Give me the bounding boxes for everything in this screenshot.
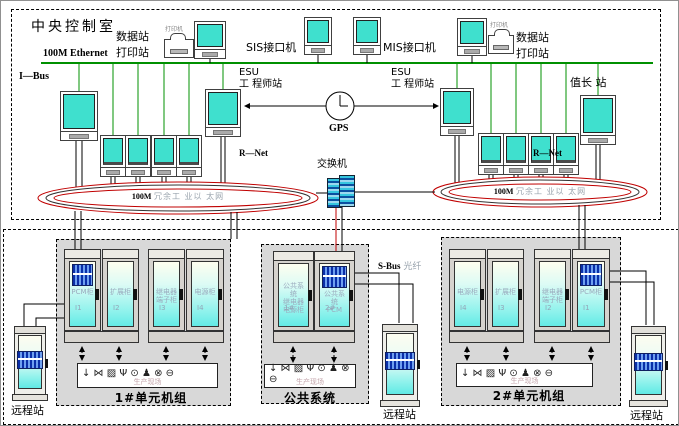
cabinet-base <box>629 400 668 407</box>
cabinet-handle <box>349 290 353 301</box>
remote-station-left <box>14 326 46 398</box>
io-module-rack <box>17 351 43 369</box>
unit1-pcm-cabinet: PCM柜 I1 <box>64 249 101 331</box>
io-module-rack <box>580 264 602 286</box>
esu-label-right: ESU 工 程师站 <box>391 67 434 91</box>
io-module-rack <box>322 266 347 288</box>
field-tag: 生产现场 <box>78 377 217 387</box>
screen <box>443 91 471 124</box>
screen <box>356 20 378 43</box>
cabinet-label: 继电器 端子柜 <box>541 288 564 304</box>
screen <box>128 138 148 165</box>
cabinet-handle <box>179 289 183 300</box>
sbus-media: 光纤 <box>403 262 421 272</box>
cabinet-header <box>274 252 313 261</box>
cabinet-base <box>534 331 610 343</box>
keyboard <box>441 126 473 135</box>
cabinet-handle <box>604 289 608 300</box>
rnet-label-right: R—Net <box>533 148 562 158</box>
ring-name: 冗余工 业以 太网 <box>154 192 224 201</box>
unit2-pcm-cabinet: PCM柜 I1 <box>572 249 610 331</box>
data-print-station-label-right: 数据站 打印站 <box>516 29 549 61</box>
control-room-title: 中央控制室 <box>31 16 116 36</box>
ring-label-left: 100M 冗余工 业以 太网 <box>98 191 258 202</box>
cabinet-door: 继电器 端子柜 I2 <box>539 261 566 327</box>
cabinet-handle <box>45 359 48 368</box>
keyboard <box>206 127 240 136</box>
cabinet-base <box>449 331 524 343</box>
field-tag: 生产现场 <box>265 377 355 387</box>
keyboard <box>61 131 97 140</box>
operator-station-monitor <box>151 135 177 177</box>
rnet-label-left: R—Net <box>239 148 268 158</box>
data-station-monitor-right <box>457 18 487 56</box>
cabinet-header <box>450 250 485 259</box>
switch-unit <box>339 175 355 207</box>
shift-leader-label: 值长 站 <box>570 74 607 90</box>
screen <box>506 136 526 163</box>
ibus-label: I—Bus <box>19 71 49 82</box>
unit1-power-cabinet: 电源柜 I4 <box>186 249 224 331</box>
remote-station-label-right: 远程站 <box>630 407 663 423</box>
ring-label-right: 100M 冗余工 业以 太网 <box>460 186 620 197</box>
io-module-rack <box>72 264 93 286</box>
keyboard <box>581 135 615 144</box>
operator-station-monitor <box>503 133 529 175</box>
cabinet-handle <box>565 289 569 300</box>
cabinet-header <box>488 250 523 259</box>
cabinet-handle <box>133 289 137 300</box>
sbus-name: S-Bus <box>378 261 401 271</box>
operator-station-monitor <box>125 135 151 177</box>
shift-leader-station-monitor <box>580 95 616 145</box>
cabinet-handle <box>518 289 522 300</box>
cabinet-number: I4 <box>197 304 204 312</box>
cabinet-header <box>65 250 100 259</box>
unit1-relay-cabinet: 继电器 端子柜 I3 <box>148 249 185 331</box>
cabinet-handle <box>308 290 312 301</box>
switch-label: 交换机 <box>317 159 347 171</box>
cabinet-base <box>64 331 139 343</box>
cabinet-number: I1 <box>75 304 82 312</box>
cabinet-number: I3 <box>498 304 505 312</box>
cabinet-number: I4 <box>460 304 467 312</box>
cabinet-door: 公共系统 PCM 2# <box>319 263 350 327</box>
cabinet-handle <box>218 289 222 300</box>
keyboard <box>479 165 503 174</box>
cabinet-header <box>383 325 417 332</box>
keyboard <box>152 167 176 176</box>
unit1-label: 1#单元机组 <box>91 389 211 406</box>
cabinet-handle <box>480 289 484 300</box>
cabinet-base <box>273 331 355 343</box>
ring-speed: 100M <box>494 187 514 196</box>
screen <box>208 92 238 125</box>
cabinet-header <box>149 250 184 259</box>
unit2-relay-cabinet: 继电器 端子柜 I2 <box>534 249 571 331</box>
keyboard <box>354 45 380 54</box>
screen <box>63 94 95 129</box>
field-tag: 生产现场 <box>457 376 592 386</box>
cabinet-number: I2 <box>113 304 120 312</box>
cabinet-label: 电源柜 <box>193 288 217 296</box>
cabinet-label: 扩展柜 <box>494 288 517 296</box>
cabinet-base <box>12 394 48 401</box>
remote-station-label-left: 远程站 <box>11 402 44 418</box>
cabinet-number: 2# <box>325 304 335 312</box>
keyboard <box>305 45 331 54</box>
esu-engineer-station-left <box>205 89 241 137</box>
keyboard <box>529 165 553 174</box>
printer-icon-right <box>488 35 514 54</box>
screen <box>583 98 613 133</box>
keyboard <box>458 46 486 55</box>
common-system-label: 公共系统 <box>267 389 353 406</box>
printer-tag-left: 打印机 <box>165 24 183 33</box>
cabinet-handle <box>665 361 668 370</box>
screen <box>307 20 329 43</box>
cabinet-label: 电源柜 <box>456 288 479 296</box>
gps-label: GPS <box>329 123 348 134</box>
sis-interface-monitor <box>304 17 332 55</box>
cabinet-number: I2 <box>545 304 552 312</box>
sbus-label: S-Bus 光纤 <box>378 259 421 272</box>
cabinet-door: PCM柜 I1 <box>69 261 96 327</box>
cabinet-door: 公共系统 继电器 电源柜 1# <box>278 263 309 327</box>
screen <box>197 24 223 47</box>
cabinet-handle <box>95 289 99 300</box>
cabinet-header <box>632 327 665 334</box>
operator-station-monitor <box>176 135 202 177</box>
cabinet-header <box>103 250 138 259</box>
esu-engineer-station-right <box>440 88 474 136</box>
mis-label: MIS接口机 <box>383 39 436 55</box>
keyboard <box>101 167 125 176</box>
cabinet-label: 扩展柜 <box>109 288 132 296</box>
network-switch-icon <box>327 175 355 207</box>
cabinet-number: I3 <box>159 304 166 312</box>
data-station-monitor-left <box>194 21 226 59</box>
cabinet-header <box>15 327 45 334</box>
keyboard <box>195 49 225 58</box>
cabinet-door: 电源柜 I4 <box>191 261 219 327</box>
unit1-extension-cabinet: 扩展柜 I2 <box>102 249 139 331</box>
keyboard <box>554 165 578 174</box>
screen <box>179 138 199 165</box>
cabinet-header <box>187 250 223 259</box>
cabinet-handle <box>417 360 420 369</box>
operator-station-far-left <box>60 91 98 141</box>
cabinet-door: PCM柜 I1 <box>577 261 605 327</box>
cabinet-door: 扩展柜 I3 <box>492 261 519 327</box>
cabinet-label: 继电器 端子柜 <box>155 288 178 304</box>
unit2-label: 2#单元机组 <box>469 387 589 404</box>
remote-station-right <box>631 326 666 404</box>
unit2-field-strip: ↓ ⋈ ▨ Ψ ⊙ ♟ ⊗ ⊖ 生产现场 <box>456 363 593 387</box>
cabinet-header <box>315 252 354 261</box>
io-module-rack <box>634 353 663 371</box>
common-pcm-cabinet: 公共系统 PCM 2# <box>314 251 355 331</box>
esu-label-left: ESU 工 程师站 <box>239 67 282 91</box>
screen <box>154 138 174 165</box>
sis-label: SIS接口机 <box>246 39 296 55</box>
keyboard <box>177 167 201 176</box>
operator-station-monitor <box>100 135 126 177</box>
printer-tag-right: 打印机 <box>490 20 508 29</box>
printer-icon-left <box>164 39 194 58</box>
unit2-power-cabinet: 电源柜 I4 <box>449 249 486 331</box>
cabinet-header <box>535 250 570 259</box>
screen <box>103 138 123 165</box>
mis-interface-monitor <box>353 17 381 55</box>
operator-station-monitor <box>478 133 504 175</box>
dcs-architecture-diagram: 中央控制室 100M Ethernet I—Bus 数据站 打印站 打印机 SI… <box>0 0 679 426</box>
cabinet-door: 扩展柜 I2 <box>107 261 134 327</box>
remote-station-label-middle: 远程站 <box>383 406 416 422</box>
cabinet-number: 1# <box>284 304 294 312</box>
cabinet-door: 电源柜 I4 <box>454 261 481 327</box>
common-field-strip: ↓ ⋈ ▨ Ψ ⊙ ♟ ⊗ ⊖ 生产现场 <box>264 364 356 388</box>
ethernet-label: 100M Ethernet <box>43 48 108 59</box>
data-print-station-label-left: 数据站 打印站 <box>116 28 149 60</box>
unit2-extension-cabinet: 扩展柜 I3 <box>487 249 524 331</box>
ring-speed: 100M <box>132 192 152 201</box>
io-module-rack <box>385 352 415 370</box>
ring-name: 冗余工 业以 太网 <box>516 187 586 196</box>
unit1-field-strip: ↓ ⋈ ▨ Ψ ⊙ ♟ ⊗ ⊖ 生产现场 <box>77 363 218 388</box>
cabinet-label: PCM柜 <box>579 288 603 296</box>
keyboard <box>504 165 528 174</box>
common-relay-power-cabinet: 公共系统 继电器 电源柜 1# <box>273 251 314 331</box>
keyboard <box>126 167 150 176</box>
cabinet-base <box>148 331 224 343</box>
cabinet-label: PCM柜 <box>71 288 94 296</box>
cabinet-header <box>573 250 609 259</box>
remote-station-middle <box>382 324 418 404</box>
screen <box>460 21 484 44</box>
cabinet-door: 继电器 端子柜 I3 <box>153 261 180 327</box>
cabinet-number: I1 <box>583 304 590 312</box>
screen <box>481 136 501 163</box>
